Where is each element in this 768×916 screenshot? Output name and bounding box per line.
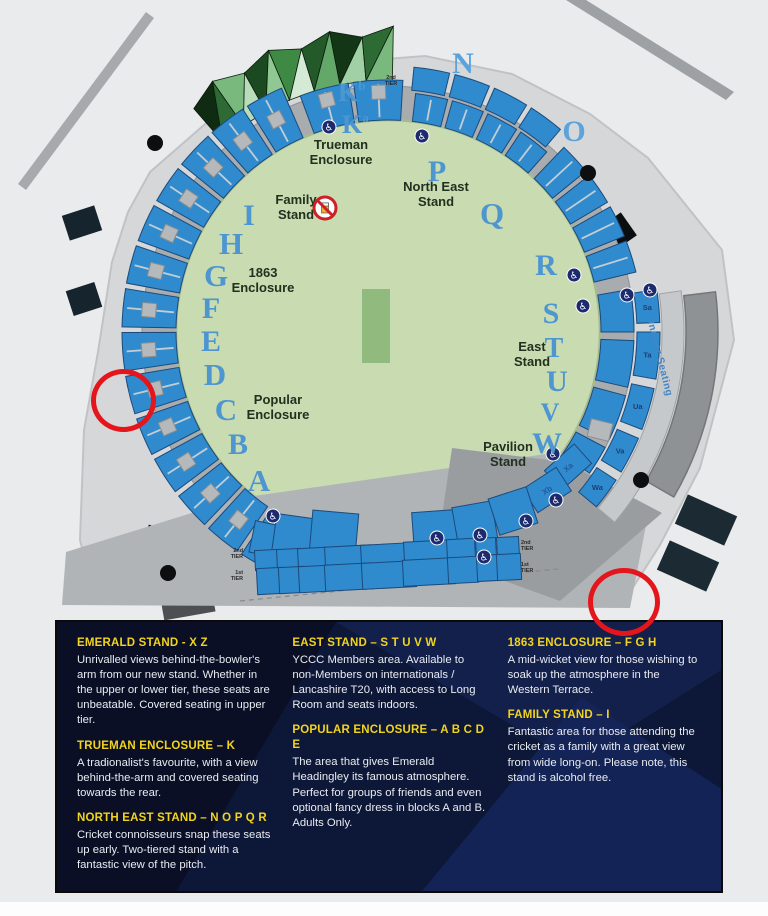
stand-letter-W: W: [532, 427, 562, 460]
wheelchair-icon: ♿: [266, 509, 280, 523]
wheelchair-glyph: ♿: [522, 516, 531, 527]
stand-section: 1863 ENCLOSURE – F G HA mid-wicket view …: [508, 636, 703, 698]
area-label-popular-enclosure: PopularEnclosure: [247, 392, 310, 422]
stand-section-body: YCCC Members area. Available to non-Memb…: [292, 653, 487, 714]
tree-dot: [633, 472, 649, 488]
wheelchair-glyph: ♿: [552, 495, 561, 506]
wheelchair-icon: ♿: [576, 299, 590, 313]
wheelchair-glyph: ♿: [480, 552, 489, 563]
wheelchair-icon: ♿: [643, 283, 657, 297]
area-label-pavilion-stand: PavilionStand: [483, 439, 533, 469]
block-label-Ta: Ta: [643, 351, 652, 360]
vomitory-square: [371, 85, 386, 100]
tree-dot: [147, 135, 163, 151]
wheelchair-icon: ♿: [415, 129, 429, 143]
stand-letter-G: G: [204, 258, 228, 293]
area-label-family-stand: FamilyStand: [275, 192, 317, 222]
page: { "title": "Emerald Headingley stadium s…: [0, 0, 768, 916]
stand-section: EAST STAND – S T U V WYCCC Members area.…: [292, 636, 487, 713]
panel-column-3: 1863 ENCLOSURE – F G HA mid-wicket view …: [508, 636, 703, 883]
panel-column-1: EMERALD STAND - X ZUnrivalled views behi…: [77, 636, 272, 883]
wheelchair-glyph: ♿: [476, 530, 485, 541]
wheelchair-icon: ♿: [430, 531, 444, 545]
stand-letter-E: E: [201, 325, 221, 358]
tree-dot: [160, 565, 176, 581]
vomitory-square: [147, 262, 164, 279]
tier-label: 2ndTIER: [385, 75, 397, 87]
stand-letter-I: I: [243, 199, 255, 232]
stand-section: NORTH EAST STAND – N O P Q RCricket conn…: [77, 811, 272, 873]
stand-letter-B: B: [228, 428, 248, 461]
stand-letter-S: S: [543, 297, 560, 330]
stand-section-body: Fantastic area for those attending the c…: [508, 725, 703, 786]
block-label-Ua: Ua: [633, 402, 643, 411]
stand-section-body: A mid-wicket view for those wishing to s…: [508, 653, 703, 698]
stand-section-heading: 1863 ENCLOSURE – F G H: [508, 636, 703, 651]
wheelchair-glyph: ♿: [623, 290, 632, 301]
block-Za: [496, 553, 521, 580]
stand-letter-D: D: [204, 357, 226, 392]
wheelchair-glyph: ♿: [579, 301, 588, 312]
no-alcohol-icon: [314, 197, 336, 219]
tier-label: 2ndTIER: [231, 548, 243, 560]
vomitory-square: [318, 91, 335, 108]
wheelchair-glyph: ♿: [325, 122, 334, 133]
annotation-circle-right: [588, 568, 660, 636]
stand-section-heading: TRUEMAN ENCLOSURE – K: [77, 739, 272, 754]
stand-letter-A: A: [248, 463, 271, 498]
wheelchair-glyph: ♿: [646, 285, 655, 296]
stand-section: TRUEMAN ENCLOSURE – KA tradionalist's fa…: [77, 739, 272, 801]
wheelchair-icon: ♿: [549, 493, 563, 507]
stand-section: FAMILY STAND – IFantastic area for those…: [508, 708, 703, 785]
stadium-map: SaTaUaVaWaXaXbXhXgXfXeXdXcYiYhYgYfYeYdYc…: [0, 0, 768, 625]
wheelchair-icon: ♿: [473, 528, 487, 542]
stadium-map-svg: SaTaUaVaWaXaXbXhXgXfXeXdXcYiYhYgYfYeYdYc…: [0, 0, 768, 625]
stand-section-heading: NORTH EAST STAND – N O P Q R: [77, 811, 272, 826]
wheelchair-glyph: ♿: [418, 131, 427, 142]
bottom-strip: [0, 902, 768, 916]
east-stand-block: [596, 339, 634, 387]
vomitory-square: [141, 342, 156, 357]
stand-letter-C: C: [215, 392, 237, 427]
wheelchair-icon: ♿: [567, 268, 581, 282]
wheelchair-glyph: ♿: [570, 270, 579, 281]
tree-dot: [580, 165, 596, 181]
cricket-pitch: [362, 289, 390, 363]
stand-letter-N: N: [452, 47, 474, 80]
stand-letter-R: R: [535, 249, 557, 282]
wheelchair-glyph: ♿: [433, 533, 442, 544]
stand-letter-H: H: [219, 226, 243, 261]
stand-letter-U: U: [546, 365, 568, 398]
block-Zc: [447, 556, 478, 584]
wheelchair-icon: ♿: [322, 120, 336, 134]
stand-section-body: Unrivalled views behind-the-bowler's arm…: [77, 653, 272, 729]
block-label-Va: Va: [616, 446, 626, 455]
stand-section-heading: EMERALD STAND - X Z: [77, 636, 272, 651]
stand-section: EMERALD STAND - X ZUnrivalled views behi…: [77, 636, 272, 729]
wheelchair-glyph: ♿: [269, 511, 278, 522]
stand-section-heading: POPULAR ENCLOSURE – A B C D E: [292, 723, 487, 753]
stand-letter-V: V: [541, 398, 560, 427]
stand-letter-O: O: [562, 115, 585, 148]
northeast-inner-block: [412, 94, 447, 127]
stand-section-body: Cricket connoisseurs snap these seats up…: [77, 828, 272, 873]
stand-letter-Q: Q: [480, 196, 504, 231]
wheelchair-icon: ♿: [620, 288, 634, 302]
block-label-Wa: Wa: [592, 483, 604, 492]
stand-section-heading: EAST STAND – S T U V W: [292, 636, 487, 651]
annotation-circle-left: [91, 369, 156, 432]
area-label-trueman-enclosure: TruemanEnclosure: [310, 137, 373, 167]
stand-letter-F: F: [202, 292, 220, 325]
stand-section-body: The area that gives Emerald Headingley i…: [292, 755, 487, 831]
wheelchair-icon: ♿: [519, 514, 533, 528]
area-label-east-stand: EastStand: [514, 339, 550, 369]
stand-info-panel: EMERALD STAND - X ZUnrivalled views behi…: [55, 620, 723, 893]
stand-section-body: A tradionalist's favourite, with a view …: [77, 756, 272, 801]
panel-column-2: EAST STAND – S T U V WYCCC Members area.…: [292, 636, 487, 883]
block-label-Sa: Sa: [643, 303, 653, 312]
stand-section: POPULAR ENCLOSURE – A B C D EThe area th…: [292, 723, 487, 831]
vomitory-square: [141, 302, 156, 317]
panel-columns: EMERALD STAND - X ZUnrivalled views behi…: [57, 622, 721, 893]
wheelchair-icon: ♿: [477, 550, 491, 564]
stand-section-heading: FAMILY STAND – I: [508, 708, 703, 723]
